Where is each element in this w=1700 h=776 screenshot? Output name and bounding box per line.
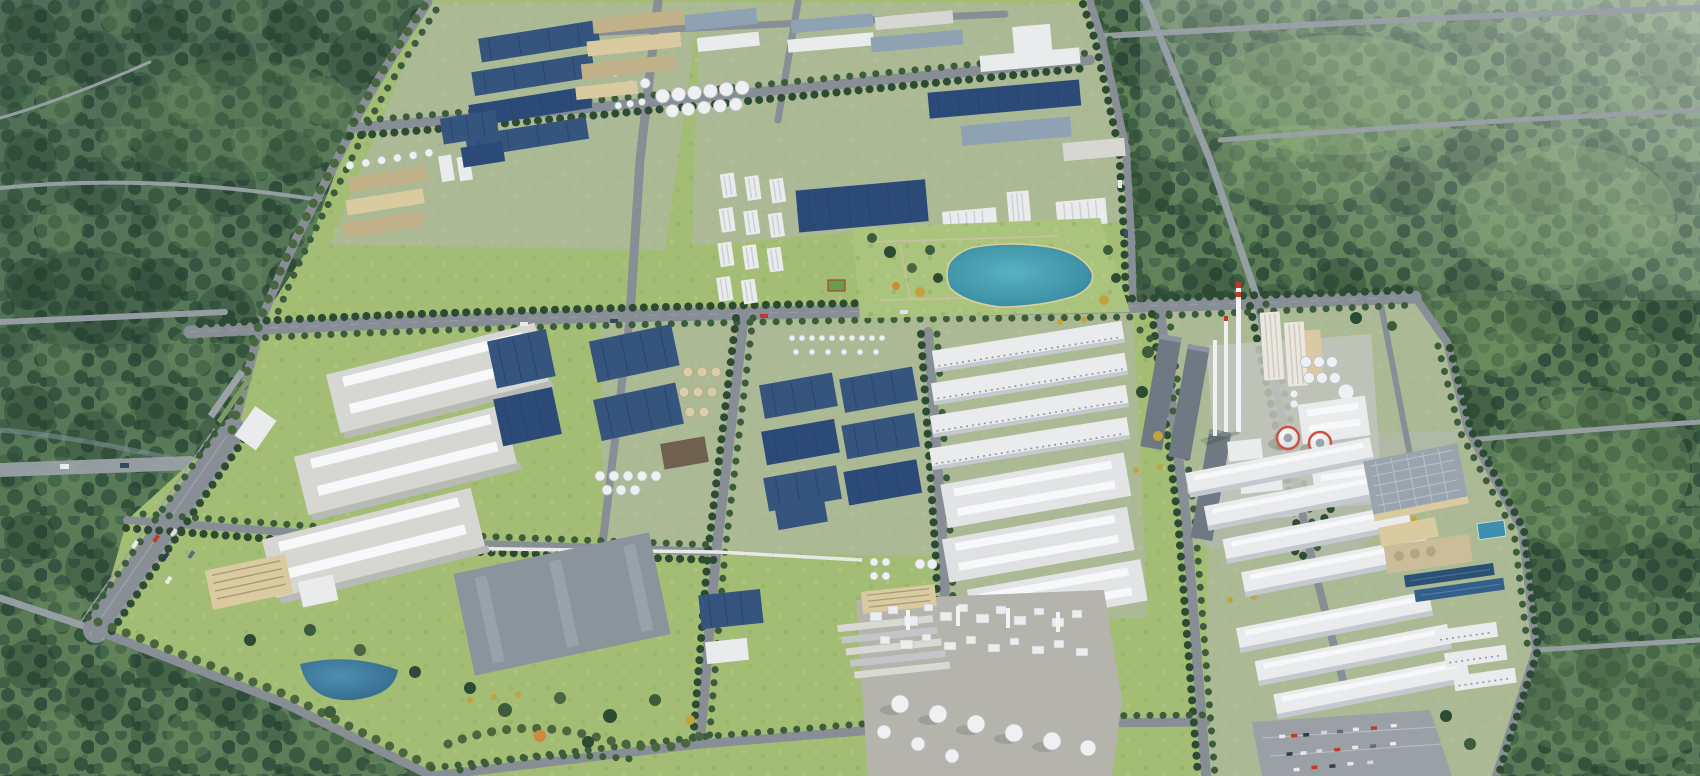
atmospheric-haze (1140, 0, 1700, 300)
sports-court (828, 280, 845, 291)
lake (947, 244, 1093, 307)
lake-garden (828, 218, 1130, 318)
aerial-render (0, 0, 1700, 776)
